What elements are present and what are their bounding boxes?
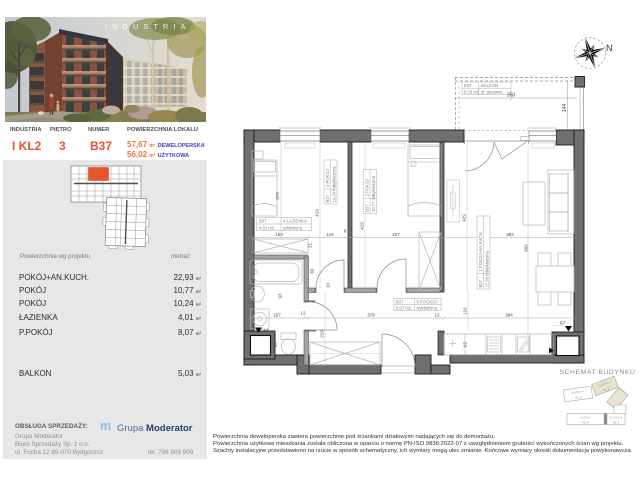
svg-text:B37: B37 [478, 279, 483, 287]
svg-text:116: 116 [463, 307, 468, 315]
svg-text:2 POKÓJ: 2 POKÓJ [364, 179, 369, 197]
svg-text:KLATKA III: KLATKA III [610, 416, 623, 420]
svg-text:144: 144 [562, 104, 568, 113]
svg-text:157: 157 [273, 312, 281, 317]
svg-text:85: 85 [273, 342, 278, 348]
svg-text:8: 8 [344, 229, 347, 234]
svg-text:4 ŁAZIENKA: 4 ŁAZIENKA [283, 219, 307, 224]
svg-text:INDUSTRIA: INDUSTRIA [105, 22, 190, 31]
svg-text:21: 21 [308, 243, 313, 249]
svg-text:5 P.POKÓJ: 5 P.POKÓJ [417, 299, 438, 304]
svg-text:169: 169 [275, 232, 283, 237]
svg-text:1 POKÓJ+AN.KUCH.: 1 POKÓJ+AN.KUCH. [478, 231, 483, 271]
svg-text:Powierzchnia deweloperska zawi: Powierzchnia deweloperska zawiera powier… [213, 434, 495, 440]
svg-text:Powierzchnia użytkowa mieszkan: Powierzchnia użytkowa mieszkania została… [213, 441, 624, 447]
svg-text:B37: B37 [325, 194, 330, 202]
svg-text:4,01 m2: 4,01 m2 [259, 225, 275, 230]
svg-text:BALKON: BALKON [481, 83, 498, 88]
svg-text:12: 12 [300, 311, 306, 316]
svg-text:609: 609 [524, 244, 529, 252]
svg-text:B37: B37 [364, 204, 369, 212]
svg-text:10: 10 [326, 283, 331, 289]
svg-text:8,07 m2: 8,07 m2 [396, 306, 412, 311]
svg-text:pł. gresowa: pł. gresowa [481, 90, 503, 95]
svg-text:B37: B37 [464, 83, 472, 88]
svg-text:384: 384 [505, 312, 513, 317]
svg-text:350: 350 [507, 93, 516, 99]
svg-text:64: 64 [264, 328, 270, 333]
svg-text:B37: B37 [396, 299, 404, 304]
svg-text:wykładzina: wykładzina [417, 306, 438, 311]
svg-text:116: 116 [326, 232, 334, 237]
svg-text:Szachty instalacyjne przedstaw: Szachty instalacyjne przedstawiono na rz… [213, 448, 633, 454]
svg-text:B37: B37 [259, 219, 267, 224]
svg-text:wykładzina: wykładzina [485, 250, 490, 271]
svg-text:419: 419 [360, 222, 365, 230]
svg-text:384: 384 [506, 232, 514, 237]
svg-text:wykładzina: wykładzina [371, 175, 376, 196]
svg-text:378: 378 [367, 312, 375, 317]
svg-text:N: N [606, 43, 613, 53]
svg-text:KL 3: KL 3 [613, 421, 619, 425]
svg-text:KLATKA I: KLATKA I [580, 416, 591, 420]
svg-text:257: 257 [392, 232, 400, 237]
svg-text:SCHEMAT BUDYNKU: SCHEMAT BUDYNKU [560, 369, 636, 376]
svg-text:62: 62 [463, 342, 468, 348]
svg-text:379: 379 [275, 192, 280, 200]
svg-text:93: 93 [278, 293, 283, 299]
svg-text:66: 66 [309, 268, 314, 274]
svg-text:210: 210 [320, 330, 325, 338]
svg-text:5,03 m2: 5,03 m2 [464, 90, 480, 95]
svg-text:KL 4: KL 4 [582, 421, 588, 425]
svg-text:429: 429 [462, 214, 467, 222]
svg-text:419: 419 [315, 209, 320, 217]
svg-text:wykładzina: wykładzina [332, 166, 337, 187]
svg-text:3 POKÓJ: 3 POKÓJ [325, 169, 330, 187]
svg-text:szkliwiona: szkliwiona [283, 225, 303, 230]
svg-text:12: 12 [434, 312, 440, 317]
